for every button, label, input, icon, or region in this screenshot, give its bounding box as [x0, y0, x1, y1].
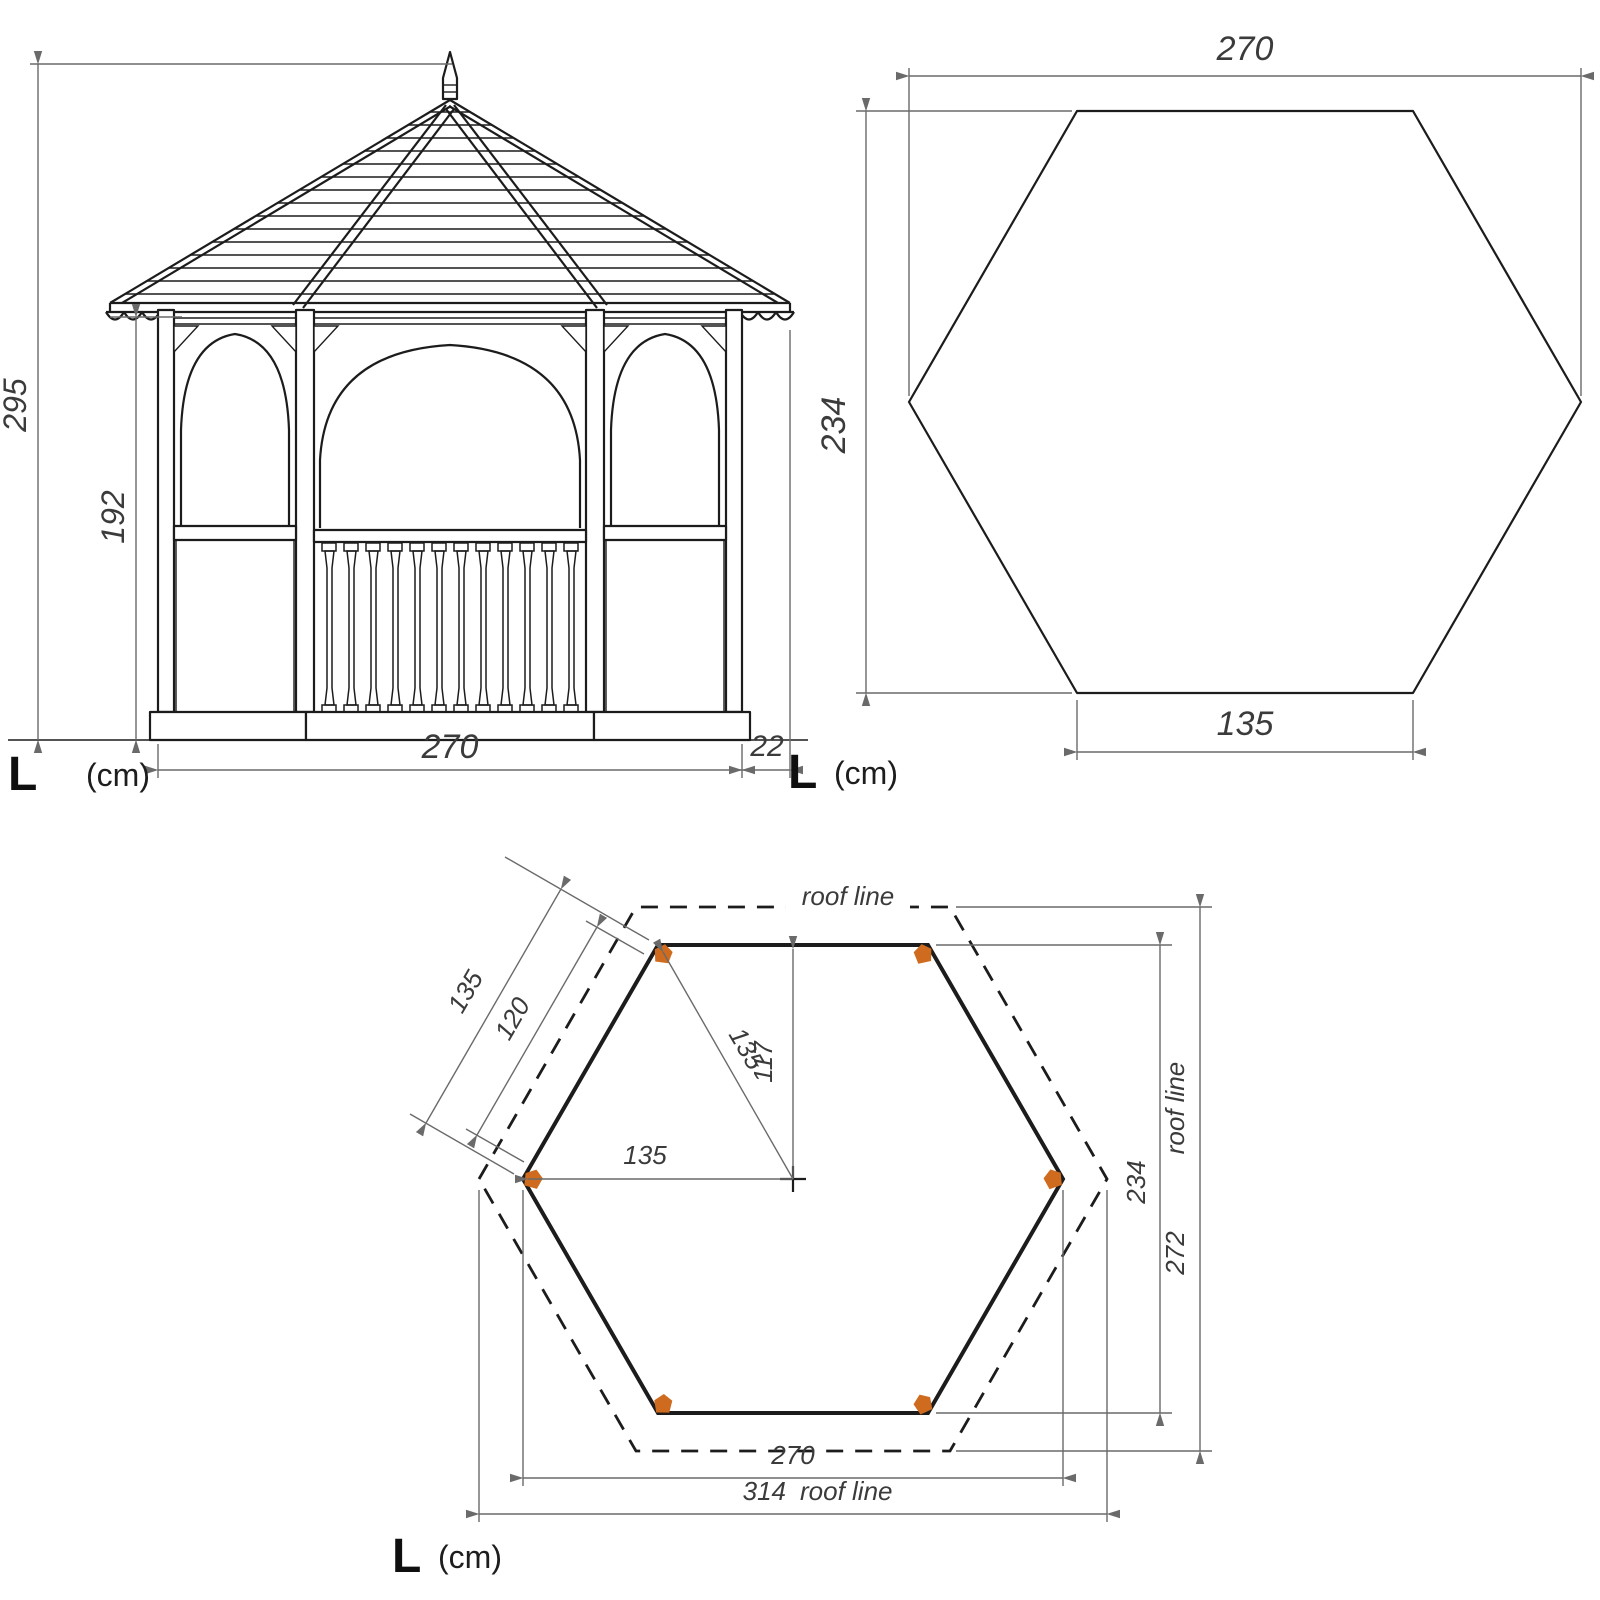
bay-arches	[181, 334, 719, 528]
dim-apothem: 117	[748, 1040, 778, 1083]
unit-label: L	[392, 1530, 421, 1583]
dim-width: 270	[421, 728, 479, 766]
gazebo-drawing: 295 192 270 22 L (cm) 270 2	[0, 0, 1600, 1600]
baluster-panel-center	[318, 542, 582, 714]
dim-overhang: 22	[749, 730, 784, 763]
rail-top-left	[174, 526, 296, 540]
post-outer-left	[158, 310, 174, 712]
post-inner-left	[296, 310, 314, 712]
front-elevation-unit-label: L (cm)	[8, 748, 150, 801]
roof-plan-unit-label: L (cm)	[788, 746, 898, 799]
dim-width: 270	[770, 1440, 815, 1470]
eave-scallop-left	[106, 312, 160, 320]
dim-width: 270	[1216, 30, 1274, 68]
floor-plan-view: roof line 135 120 135	[392, 857, 1212, 1583]
dim-post-spacing: 120	[488, 992, 536, 1045]
dim-half-width: 135	[623, 1140, 667, 1170]
arch-left	[181, 334, 289, 528]
spindle-panel-right	[606, 540, 724, 712]
technical-drawing-sheet: 295 192 270 22 L (cm) 270 2	[0, 0, 1600, 1600]
post-inner-right	[586, 310, 604, 712]
gazebo-roof	[106, 52, 794, 320]
unit-label: L	[8, 748, 37, 801]
ext-line-post-top	[586, 921, 644, 954]
corbels	[174, 326, 726, 352]
post-outer-right	[726, 310, 742, 712]
unit-suffix: (cm)	[86, 757, 150, 793]
railing	[174, 526, 726, 728]
dim-roof-depth: 272	[1160, 1231, 1190, 1276]
ext-line-post-bottom	[466, 1129, 524, 1162]
post-marker-icon	[653, 1393, 673, 1413]
roof-line-label: roof line	[802, 881, 895, 911]
arch-right	[611, 334, 719, 528]
roof-finial	[443, 52, 457, 99]
rail-top-center	[314, 530, 586, 542]
eave-scallop-right	[740, 312, 794, 320]
dim-roof-depth-label: roof line	[1160, 1062, 1190, 1155]
roof-hexagon-outline	[909, 111, 1581, 693]
unit-suffix: (cm)	[438, 1539, 502, 1575]
dim-post-height: 192	[95, 490, 131, 544]
dim-total-height: 295	[0, 378, 33, 433]
frieze-beam	[158, 318, 742, 324]
floor-plan-unit-label: L (cm)	[392, 1530, 502, 1583]
ext-line-top-vertex	[505, 857, 649, 940]
front-elevation-view: 295 192 270 22 L (cm)	[0, 52, 808, 801]
dim-roof-width: 314	[743, 1476, 786, 1506]
arch-center	[320, 345, 580, 528]
dim-roof-width-label: roof line	[800, 1476, 893, 1506]
roof-outline	[106, 100, 794, 320]
unit-label: L	[788, 746, 817, 799]
roof-plan-view: 270 234 135 L (cm)	[788, 30, 1581, 799]
roof-slats	[125, 112, 775, 294]
spindle-panel-left	[176, 540, 294, 712]
rail-top-right	[604, 526, 726, 540]
unit-suffix: (cm)	[834, 755, 898, 791]
dim-depth: 234	[815, 397, 853, 455]
dim-front-side: 135	[1217, 705, 1274, 743]
dim-depth: 234	[1121, 1160, 1151, 1204]
dim-side-length: 135	[441, 965, 489, 1018]
